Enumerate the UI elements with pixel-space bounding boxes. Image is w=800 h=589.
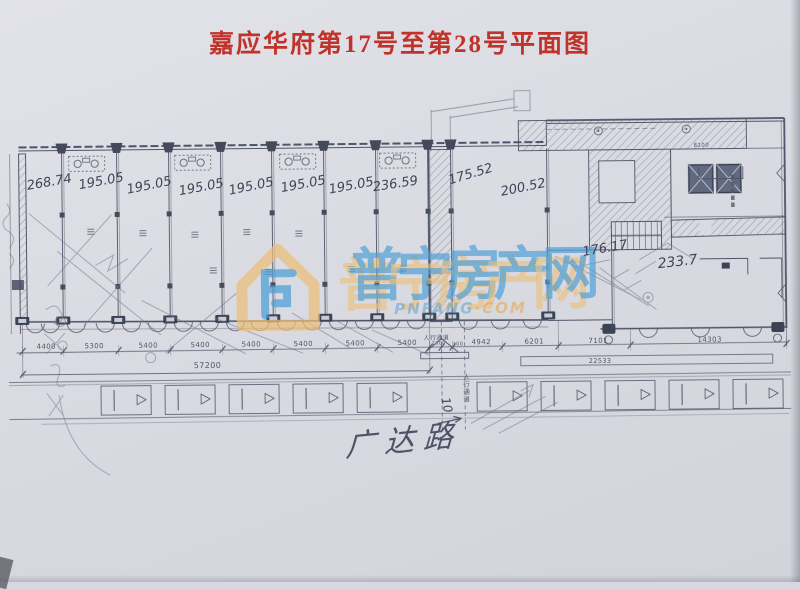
scan-edge-bottom (0, 575, 800, 582)
scanned-floorplan-page: 嘉应华府第17号至第28号平面图 普普宁宁房房产产网网 PNFANG·COM 2… (0, 0, 800, 582)
dimension-label: 5300 (85, 343, 104, 350)
road-label: 广达路 (345, 421, 463, 463)
handwritten-and-dimension-labels: 268.74195.05195.05195.05195.05195.05195.… (0, 0, 800, 586)
dimension-label: 4400 (37, 344, 56, 351)
passage-label: 人行通道 (423, 335, 449, 341)
unit-area-label: 195.05 (78, 171, 125, 192)
dimension-label: 5400 (346, 340, 365, 347)
total-dimension: 57200 (194, 362, 222, 370)
dimension-label: 5400 (139, 343, 158, 350)
floorplan: 普普宁宁房房产产网网 PNFANG·COM 268.74195.05195.05… (0, 0, 800, 586)
dimension-label: 14303 (697, 337, 721, 344)
unit-area-label: 195.05 (280, 174, 327, 195)
dimension-label: 6201 (525, 338, 544, 345)
unit-area-label: 268.74 (26, 172, 73, 192)
unit-area-label: 195.05 (126, 175, 173, 197)
scan-edge-right (790, 0, 800, 582)
unit-area-label: 195.05 (228, 176, 275, 198)
unit-area-label: 175.52 (447, 162, 494, 187)
corridor-label: 人行通道 (462, 373, 469, 403)
dimension-label: 2300 (432, 342, 446, 347)
dimension-label: 5400 (242, 341, 261, 348)
dimension-label: 4942 (472, 339, 491, 346)
unit-area-label: 195.05 (328, 175, 375, 196)
dimension-label: 8100 (693, 144, 709, 150)
total-dimension: 22533 (589, 358, 612, 365)
dimension-label: 7101 (589, 338, 608, 345)
unit-area-label: 233.7 (657, 253, 698, 272)
unit-area-label: 195.05 (178, 177, 225, 198)
dimension-label: 5400 (398, 340, 417, 347)
dimension-label: 5400 (294, 341, 313, 348)
unit-area-label: 236.59 (372, 175, 419, 195)
unit-area-label: 176.17 (582, 239, 629, 259)
unit-area-label: 200.52 (500, 177, 547, 199)
dimension-label: 5400 (191, 342, 210, 349)
handwritten-note-10: 10 (439, 396, 454, 414)
dimension-label: 100 (453, 342, 464, 347)
